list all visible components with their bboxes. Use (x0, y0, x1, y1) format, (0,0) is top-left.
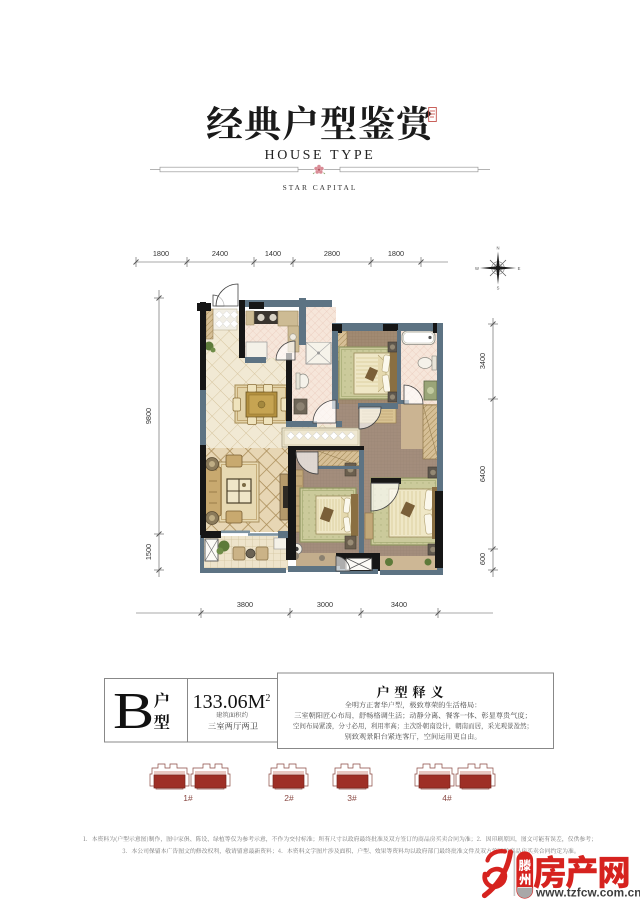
svg-text:E: E (518, 266, 521, 271)
svg-text:600: 600 (478, 553, 487, 565)
svg-text:4#: 4# (442, 793, 452, 803)
svg-text:www.tzfcw.com.cn: www.tzfcw.com.cn (535, 886, 640, 900)
svg-text:6400: 6400 (478, 466, 487, 482)
svg-text:3000: 3000 (317, 600, 333, 609)
svg-text:1400: 1400 (265, 249, 281, 258)
svg-text:2#: 2# (284, 793, 294, 803)
svg-text:B: B (113, 683, 154, 740)
svg-text:HOUSE TYPE: HOUSE TYPE (265, 148, 376, 163)
svg-text:3400: 3400 (391, 600, 407, 609)
svg-text:2800: 2800 (324, 249, 340, 258)
svg-text:133.06M2: 133.06M2 (193, 691, 271, 713)
svg-text:1800: 1800 (153, 249, 169, 258)
svg-text:1#: 1# (183, 793, 193, 803)
svg-text:1500: 1500 (144, 544, 153, 560)
svg-text:1800: 1800 (388, 249, 404, 258)
svg-text:S: S (497, 286, 500, 291)
svg-text:9800: 9800 (144, 408, 153, 424)
svg-text:3800: 3800 (237, 600, 253, 609)
svg-text:STAR CAPITAL: STAR CAPITAL (283, 183, 358, 192)
svg-text:3#: 3# (347, 793, 357, 803)
svg-text:2400: 2400 (212, 249, 228, 258)
svg-text:N: N (496, 246, 499, 251)
svg-text:3400: 3400 (478, 353, 487, 369)
svg-text:W: W (475, 266, 479, 271)
